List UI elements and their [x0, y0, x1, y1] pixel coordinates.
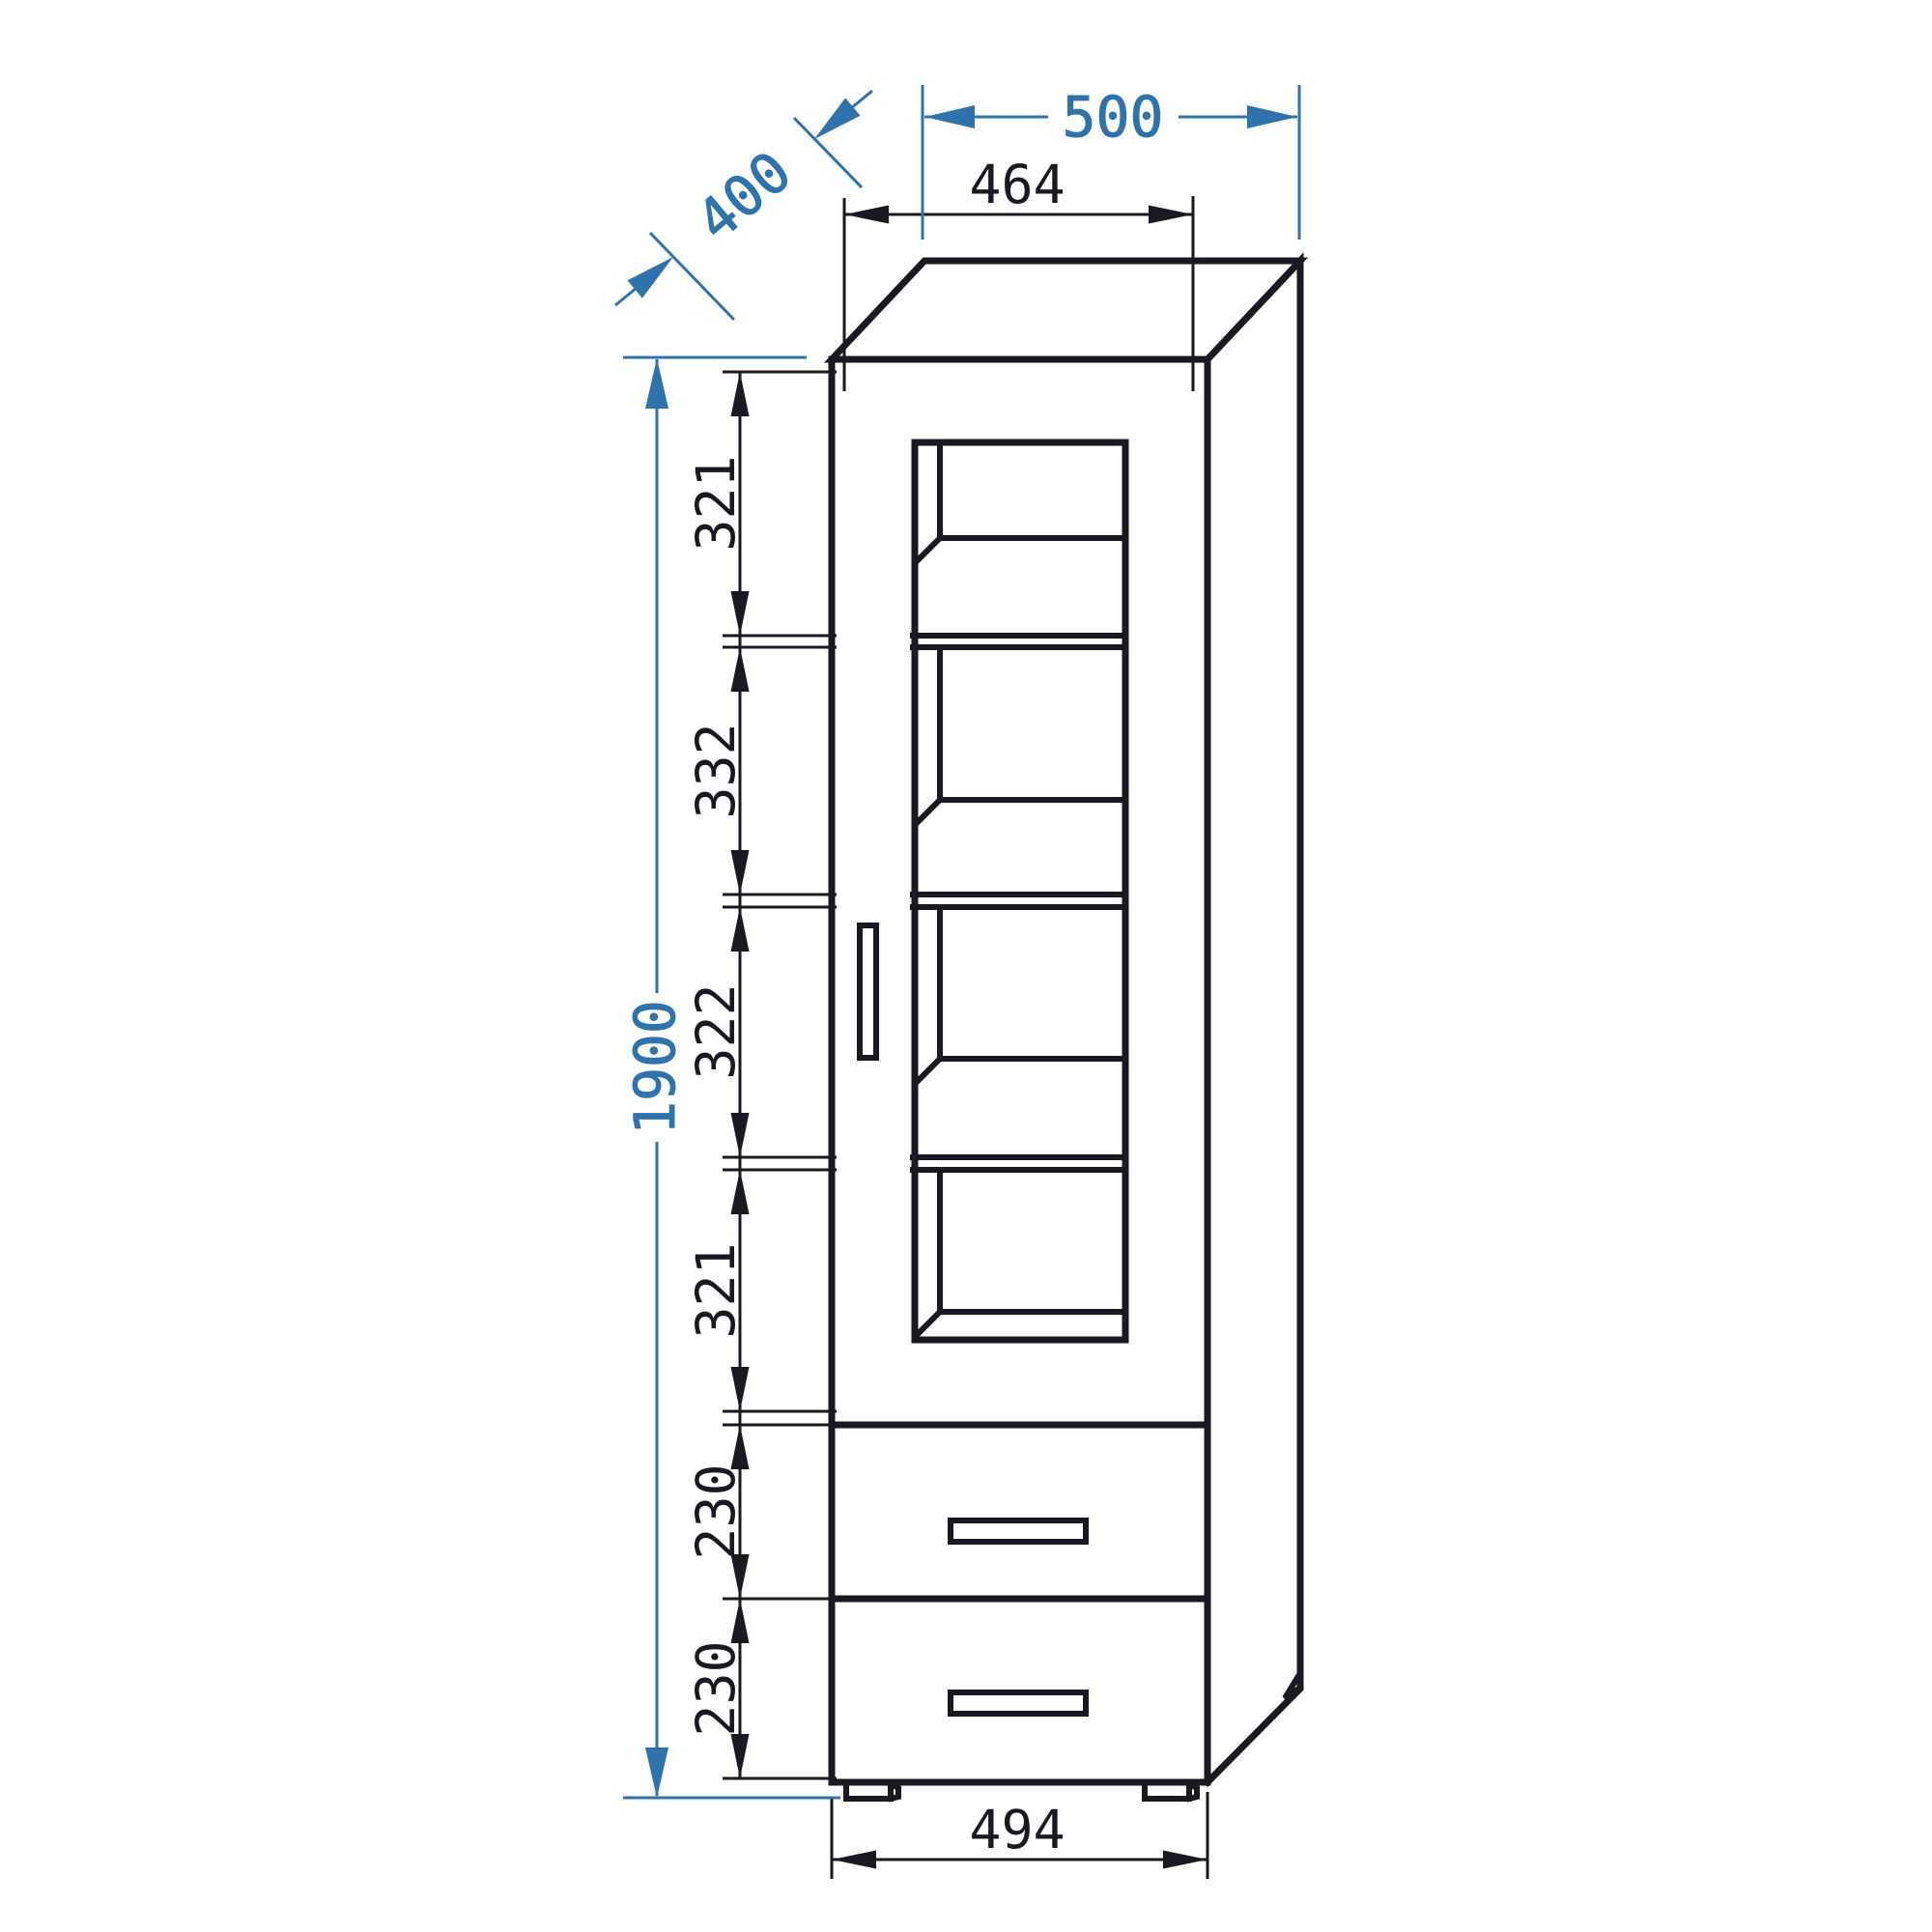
top-face: [832, 261, 1300, 359]
dim-arrow: [645, 358, 668, 409]
dim-arrow: [731, 1425, 750, 1469]
dim-464-label: 464: [969, 154, 1065, 215]
side-face: [1207, 261, 1300, 1782]
dim-494-label: 494: [969, 1799, 1065, 1861]
cabinet: [832, 261, 1300, 1799]
cabinet-technical-drawing: 464 494 321 332: [0, 0, 1932, 1932]
dim-arrow: [731, 1113, 750, 1157]
dim-arrow: [731, 1599, 750, 1643]
dim-arrow: [731, 372, 750, 416]
foot-left: [846, 1782, 891, 1799]
drawer-2-handle: [951, 1692, 1086, 1714]
dim-arrow: [645, 1747, 668, 1798]
dim-overall-depth: 400: [615, 91, 872, 320]
dim-arrow: [731, 1734, 750, 1778]
dim-segment-column: 321 332 322 321 230 230: [685, 372, 837, 1778]
dim-arrow: [731, 907, 750, 952]
dim-arrow: [731, 1170, 750, 1214]
dim-segment-2-label: 332: [685, 723, 747, 818]
dim-arrow: [731, 1554, 750, 1599]
front-face: [832, 359, 1207, 1782]
dim-segment-1-label: 321: [685, 455, 747, 551]
drawer-1-handle: [951, 1520, 1086, 1542]
glass-door-window: [915, 442, 1125, 1340]
dim-400-label: 400: [684, 138, 804, 253]
dim-inner-top-width: 464: [844, 154, 1193, 391]
dim-arrow: [1247, 105, 1297, 128]
shelf-front-lines: [913, 636, 1125, 1170]
door-handle: [860, 925, 876, 1058]
foot-right: [1145, 1782, 1189, 1799]
dim-arrow: [832, 1851, 876, 1869]
dim-arrow: [1163, 1851, 1207, 1869]
dim-arrow: [1149, 206, 1193, 224]
dim-1900-label: 1900: [622, 1000, 688, 1135]
dim-arrow: [731, 1367, 750, 1411]
dim-arrow: [844, 206, 889, 224]
dim-drawer-1-label: 230: [685, 1463, 747, 1559]
shelf-3d-lines: [916, 442, 1125, 1336]
dim-body-width: 494: [832, 1792, 1207, 1879]
dim-arrow: [731, 850, 750, 895]
dim-arrow: [731, 591, 750, 636]
dim-arrow: [924, 105, 975, 128]
dim-segment-3-label: 322: [685, 983, 747, 1079]
dim-500-label: 500: [1063, 84, 1164, 150]
dim-drawer-2-label: 230: [685, 1640, 747, 1736]
dim-segment-4-label: 321: [685, 1242, 747, 1338]
dim-arrow: [731, 647, 750, 692]
black-dimensions: 464 494 321 332: [685, 154, 1207, 1879]
